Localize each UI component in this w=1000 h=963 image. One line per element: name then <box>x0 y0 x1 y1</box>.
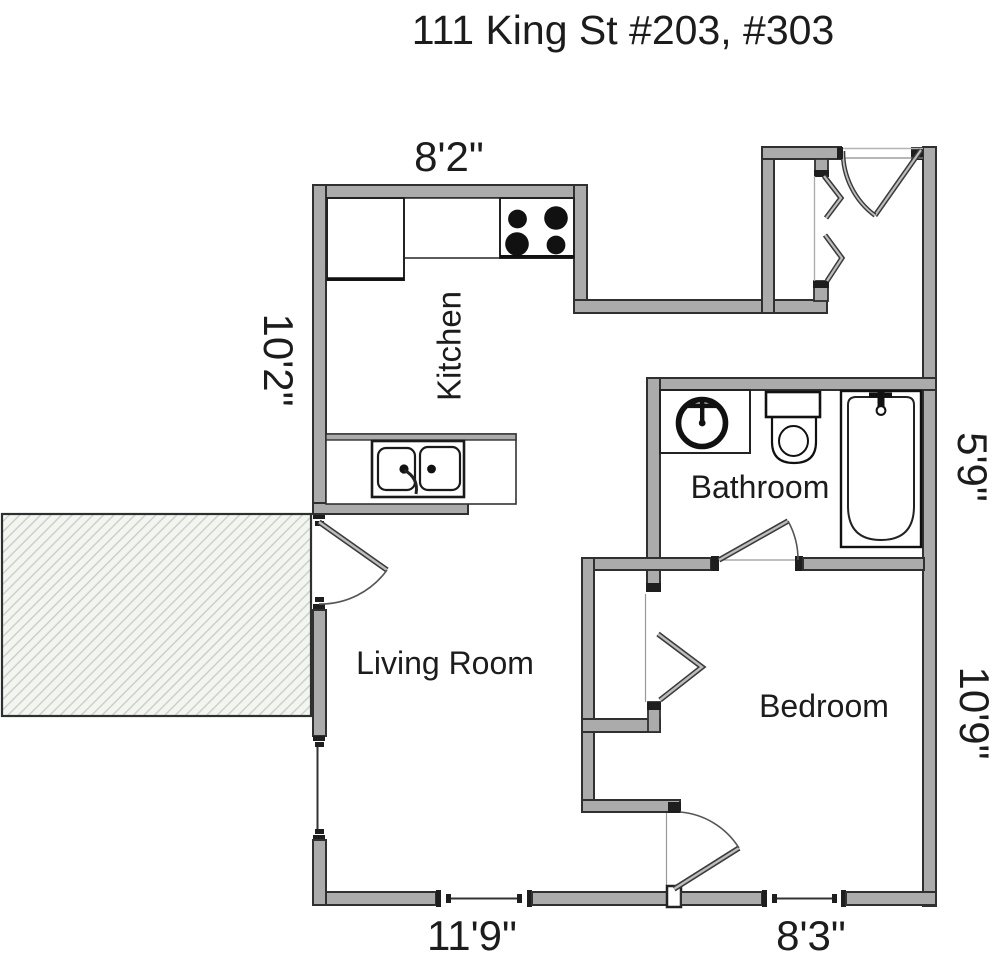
svg-text:111 King St #203, #303: 111 King St #203, #303 <box>412 7 835 53</box>
svg-text:8'2": 8'2" <box>414 133 484 180</box>
svg-text:10'2": 10'2" <box>255 313 302 406</box>
svg-text:Kitchen: Kitchen <box>431 291 468 401</box>
svg-text:5'9": 5'9" <box>949 432 996 502</box>
svg-text:11'9": 11'9" <box>427 912 517 959</box>
svg-text:Living Room: Living Room <box>356 645 534 681</box>
svg-text:10'9": 10'9" <box>951 666 998 759</box>
svg-text:Bathroom: Bathroom <box>691 469 830 505</box>
svg-text:8'3": 8'3" <box>776 912 846 959</box>
svg-text:Bedroom: Bedroom <box>759 688 889 724</box>
